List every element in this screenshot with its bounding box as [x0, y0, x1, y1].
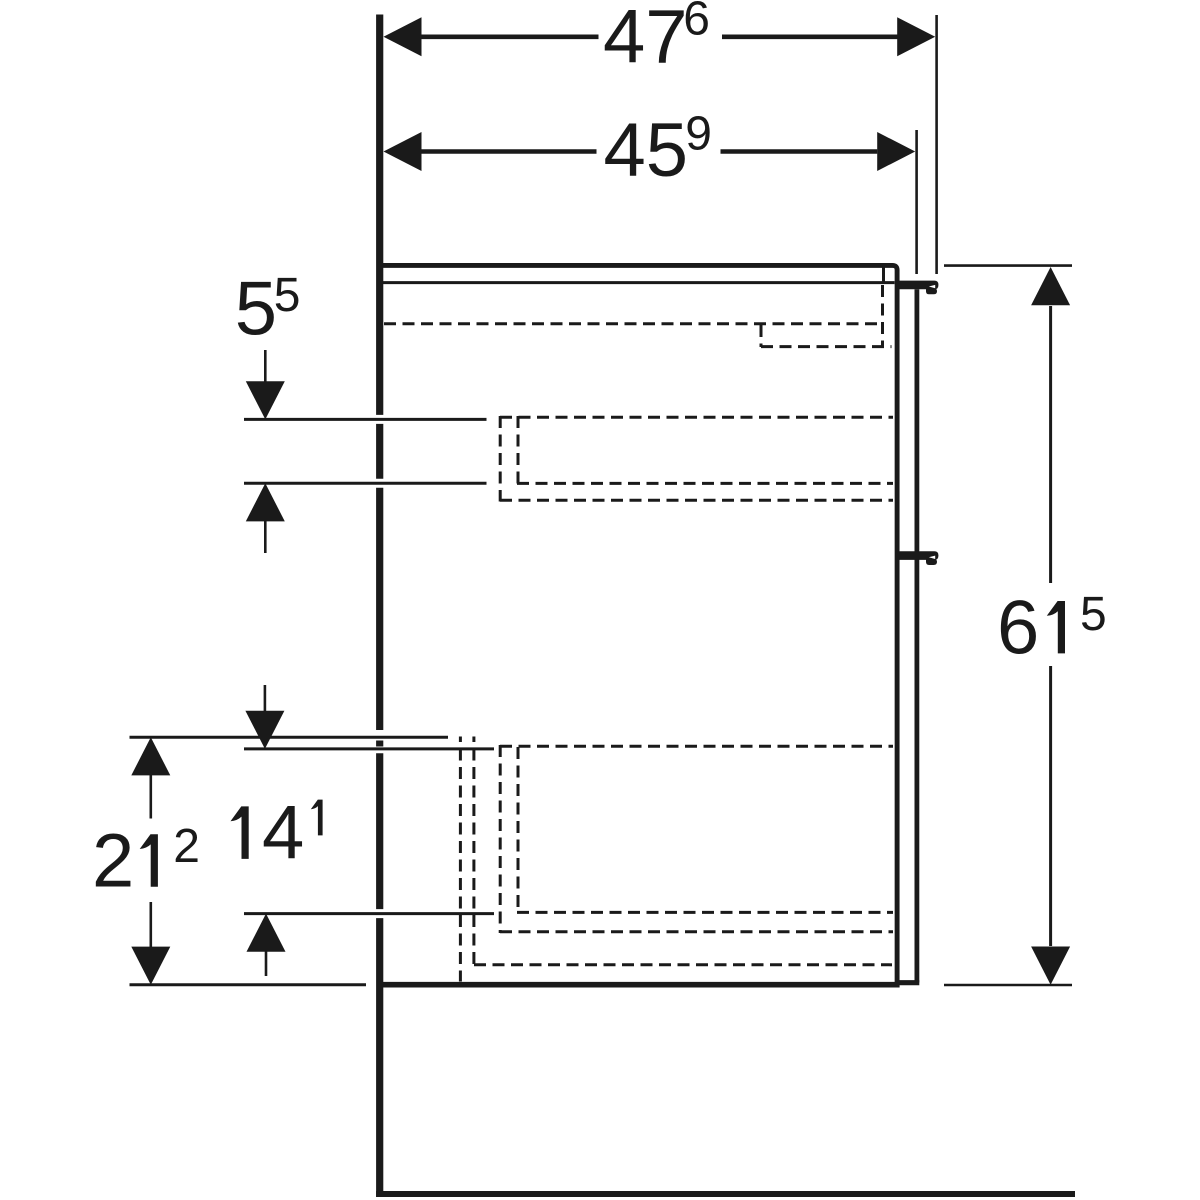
svg-text:2: 2 — [92, 818, 134, 903]
svg-text:6: 6 — [683, 0, 710, 46]
svg-text:5: 5 — [274, 269, 301, 322]
svg-text:47: 47 — [603, 0, 688, 80]
svg-text:4: 4 — [262, 791, 304, 876]
svg-text:5: 5 — [1080, 588, 1107, 641]
svg-text:5: 5 — [235, 267, 277, 352]
svg-text:45: 45 — [604, 108, 689, 193]
svg-text:6: 6 — [997, 585, 1039, 670]
svg-text:2: 2 — [173, 820, 200, 873]
svg-text:9: 9 — [685, 108, 712, 161]
